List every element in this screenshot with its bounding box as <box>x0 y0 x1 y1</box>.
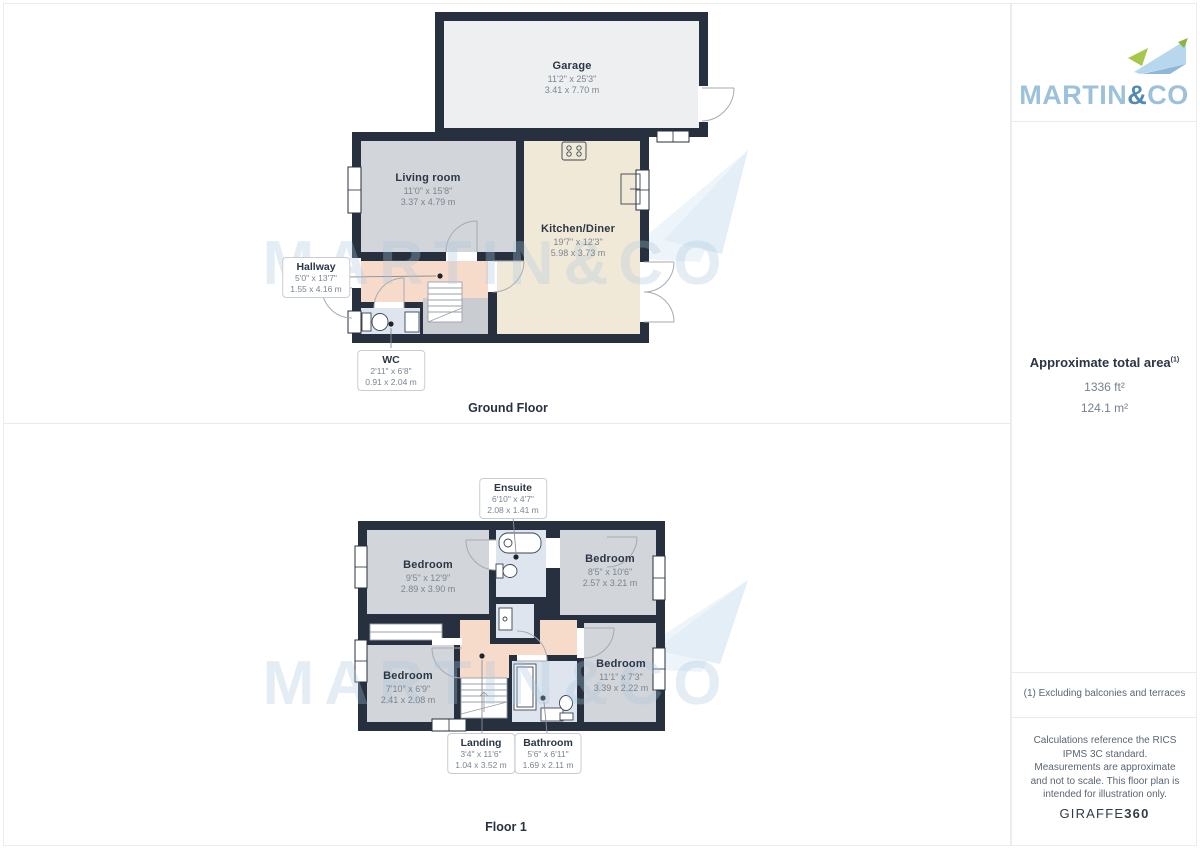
room-dim-metric: 5.98 x 3.73 m <box>541 248 615 259</box>
room-label-kitchen-diner: Kitchen/Diner 19'7" x 12'3" 5.98 x 3.73 … <box>541 223 615 259</box>
room-dim-metric: 2.57 x 3.21 m <box>583 578 638 589</box>
room-dim-metric: 1.04 x 3.52 m <box>455 760 507 771</box>
room-dim-metric: 1.69 x 2.11 m <box>523 760 574 771</box>
room-dim-metric: 2.89 x 3.90 m <box>401 584 456 595</box>
room-dim-imperial: 6'10" x 4'7" <box>487 494 539 505</box>
room-dim-metric: 2.41 x 2.08 m <box>381 695 436 706</box>
credit-name: GIRAFFE <box>1059 806 1124 821</box>
room-title: Hallway <box>290 261 342 273</box>
wc-leader-dot <box>388 321 393 326</box>
room-dim-metric: 3.37 x 4.79 m <box>395 197 460 208</box>
room-dim-imperial: 8'5" x 10'6" <box>583 567 638 578</box>
room-title: Living room <box>395 172 460 184</box>
label-box-landing: Landing 3'4" x 11'6" 1.04 x 3.52 m <box>447 733 515 774</box>
total-area-title: Approximate total area(1) <box>1013 355 1196 370</box>
label-box-wc: WC 2'11" x 6'8" 0.91 x 2.04 m <box>357 350 425 391</box>
total-area-sqm: 124.1 m² <box>1013 398 1196 419</box>
total-area-block: Approximate total area(1) 1336 ft² 124.1… <box>1013 355 1196 419</box>
brand-part1: MARTIN <box>1019 80 1127 110</box>
total-area-title-text: Approximate total area <box>1030 355 1171 370</box>
brand-ampersand: & <box>1127 80 1147 110</box>
room-label-bedroom-4: Bedroom 11'1" x 7'3" 3.39 x 2.22 m <box>594 658 649 694</box>
room-title: Bedroom <box>401 559 456 571</box>
room-dim-metric: 3.41 x 7.70 m <box>545 85 600 96</box>
disclaimer-text: Calculations reference the RICS IPMS 3C … <box>1029 734 1181 802</box>
room-dim-imperial: 5'6" x 6'11" <box>523 749 574 760</box>
room-dim-metric: 3.39 x 2.22 m <box>594 683 649 694</box>
room-label-bedroom-1: Bedroom 9'5" x 12'9" 2.89 x 3.90 m <box>401 559 456 595</box>
total-area-sqft: 1336 ft² <box>1013 377 1196 398</box>
room-dim-imperial: 5'0" x 13'7" <box>290 273 342 284</box>
room-title: Garage <box>545 60 600 72</box>
page: { "watermark": { "text": "MARTIN&CO" }, … <box>0 0 1200 849</box>
room-label-living-room: Living room 11'0" x 15'8" 3.37 x 4.79 m <box>395 172 460 208</box>
room-dim-metric: 2.08 x 1.41 m <box>487 505 539 516</box>
room-label-bedroom-2: Bedroom 8'5" x 10'6" 2.57 x 3.21 m <box>583 553 638 589</box>
room-dim-imperial: 7'10" x 6'9" <box>381 684 436 695</box>
room-title: Ensuite <box>487 482 539 494</box>
room-label-bedroom-3: Bedroom 7'10" x 6'9" 2.41 x 2.08 m <box>381 670 436 706</box>
room-dim-metric: 1.55 x 4.16 m <box>290 284 342 295</box>
label-box-bathroom: Bathroom 5'6" x 6'11" 1.69 x 2.11 m <box>515 733 582 774</box>
room-title: Bedroom <box>381 670 436 682</box>
label-box-hallway: Hallway 5'0" x 13'7" 1.55 x 4.16 m <box>282 257 350 298</box>
brand-wordmark: MARTIN&CO <box>1014 80 1194 111</box>
room-dim-imperial: 19'7" x 12'3" <box>541 237 615 248</box>
total-area-footnote-ref: (1) <box>1171 357 1180 364</box>
room-title: WC <box>365 354 417 366</box>
room-dim-metric: 0.91 x 2.04 m <box>365 377 417 388</box>
credit-suffix: 360 <box>1124 806 1149 821</box>
watermark-first: MARTIN&CO <box>263 648 732 719</box>
brand-house-icon <box>1126 34 1188 76</box>
room-dim-imperial: 2'11" x 6'8" <box>365 366 417 377</box>
brand-logo: MARTIN&CO <box>1014 28 1194 114</box>
brand-part2: CO <box>1147 80 1189 110</box>
label-box-ensuite: Ensuite 6'10" x 4'7" 2.08 x 1.41 m <box>479 478 547 519</box>
area-footnote: (1) Excluding balconies and terraces <box>1013 688 1196 699</box>
room-title: Bathroom <box>523 737 574 749</box>
room-label-garage: Garage 11'2" x 25'3" 3.41 x 7.70 m <box>545 60 600 96</box>
floor-title-ground: Ground Floor <box>468 401 548 415</box>
room-dim-imperial: 3'4" x 11'6" <box>455 749 507 760</box>
giraffe360-credit: GIRAFFE360 <box>1013 806 1196 821</box>
wardrobe <box>370 624 442 640</box>
room-title: Kitchen/Diner <box>541 223 615 235</box>
room-title: Bedroom <box>594 658 649 670</box>
floor-title-first: Floor 1 <box>485 820 527 834</box>
room-title: Landing <box>455 737 507 749</box>
ensuite-leader-dot <box>513 554 518 559</box>
floor-plan-graphics <box>0 0 1200 849</box>
room-dim-imperial: 9'5" x 12'9" <box>401 573 456 584</box>
room-dim-imperial: 11'2" x 25'3" <box>545 74 600 85</box>
room-title: Bedroom <box>583 553 638 565</box>
room-dim-imperial: 11'0" x 15'8" <box>395 186 460 197</box>
room-dim-imperial: 11'1" x 7'3" <box>594 672 649 683</box>
